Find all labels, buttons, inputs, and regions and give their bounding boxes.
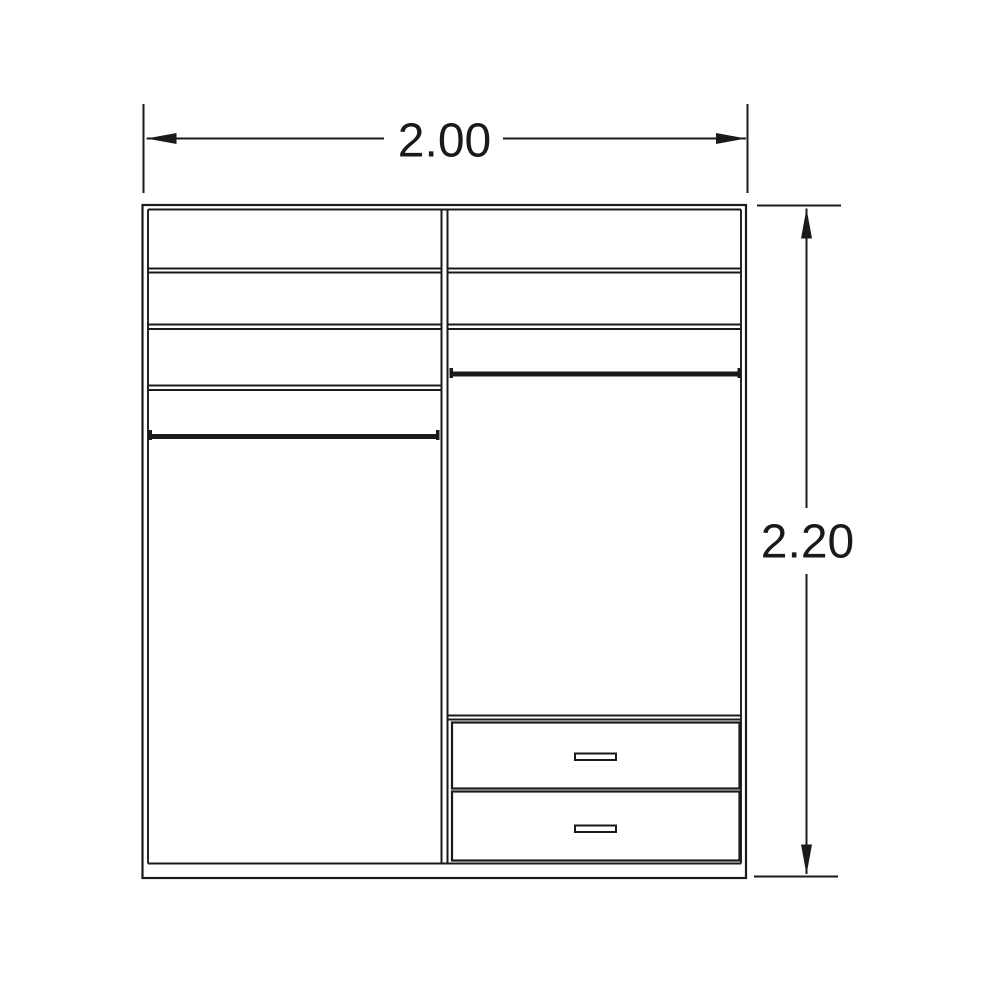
svg-text:2.20: 2.20	[761, 516, 854, 569]
svg-text:2.00: 2.00	[398, 115, 491, 168]
